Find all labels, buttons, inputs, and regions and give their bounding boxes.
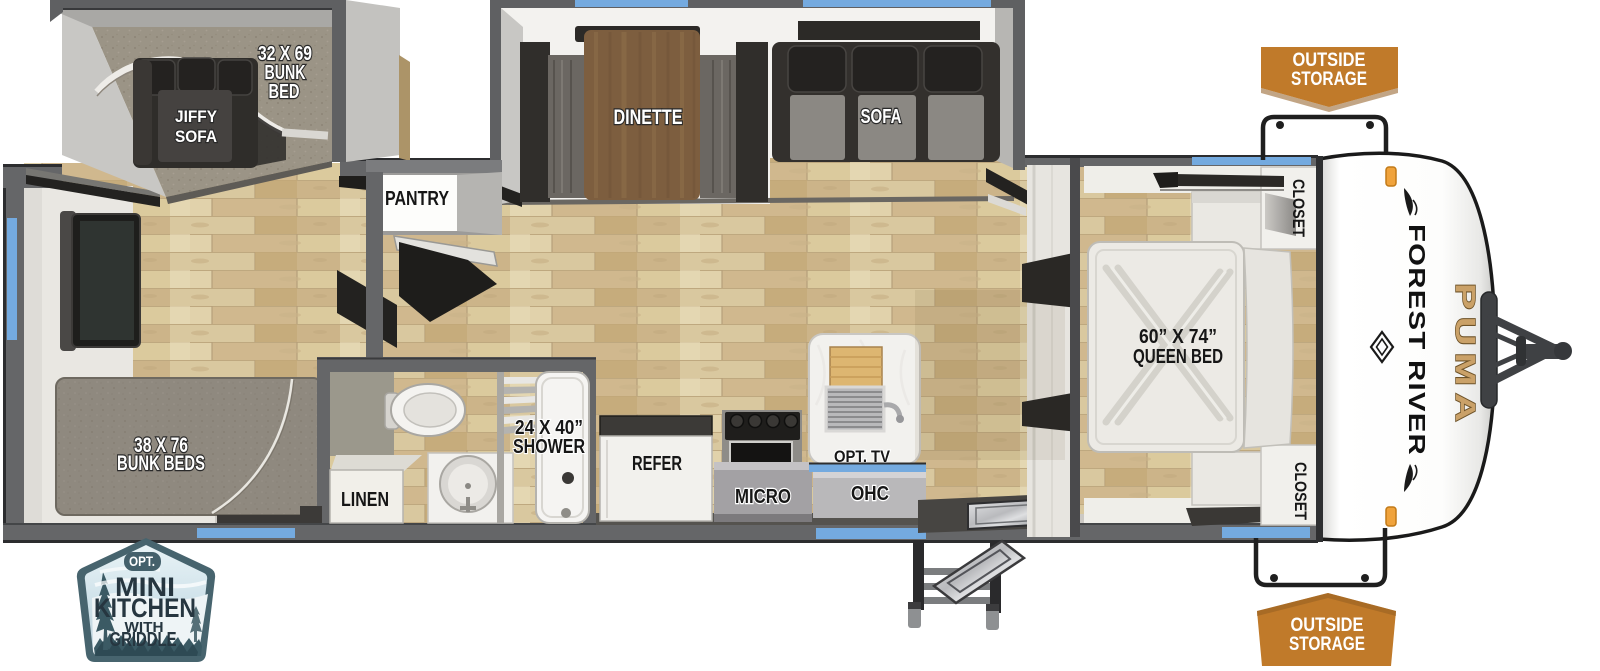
svg-text:STORAGE: STORAGE <box>1289 634 1365 655</box>
svg-text:BUNK BEDS: BUNK BEDS <box>117 452 205 475</box>
svg-text:OUTSIDE: OUTSIDE <box>1291 615 1364 636</box>
svg-text:GRIDDLE: GRIDDLE <box>110 629 177 651</box>
svg-text:SHOWER: SHOWER <box>513 436 585 458</box>
svg-text:BED: BED <box>269 81 300 103</box>
svg-text:CLOSET: CLOSET <box>1291 462 1310 521</box>
svg-text:FOREST RIVER: FOREST RIVER <box>1404 224 1430 456</box>
svg-text:PUMA: PUMA <box>1450 283 1481 429</box>
svg-text:DINETTE: DINETTE <box>614 106 683 129</box>
svg-text:JIFFY: JIFFY <box>175 107 218 126</box>
svg-text:STORAGE: STORAGE <box>1291 69 1367 90</box>
svg-text:OUTSIDE: OUTSIDE <box>1293 50 1366 71</box>
svg-text:PANTRY: PANTRY <box>385 188 450 210</box>
svg-text:CLOSET: CLOSET <box>1289 179 1308 238</box>
svg-text:OPT.: OPT. <box>129 553 155 569</box>
svg-text:QUEEN BED: QUEEN BED <box>1133 346 1223 368</box>
svg-text:SOFA: SOFA <box>175 127 217 146</box>
svg-text:REFER: REFER <box>632 453 682 475</box>
svg-text:MICRO: MICRO <box>735 486 791 508</box>
svg-text:SOFA: SOFA <box>861 106 902 128</box>
svg-text:60” X 74”: 60” X 74” <box>1139 326 1217 348</box>
svg-text:OHC: OHC <box>851 483 889 505</box>
svg-text:LINEN: LINEN <box>341 489 389 511</box>
